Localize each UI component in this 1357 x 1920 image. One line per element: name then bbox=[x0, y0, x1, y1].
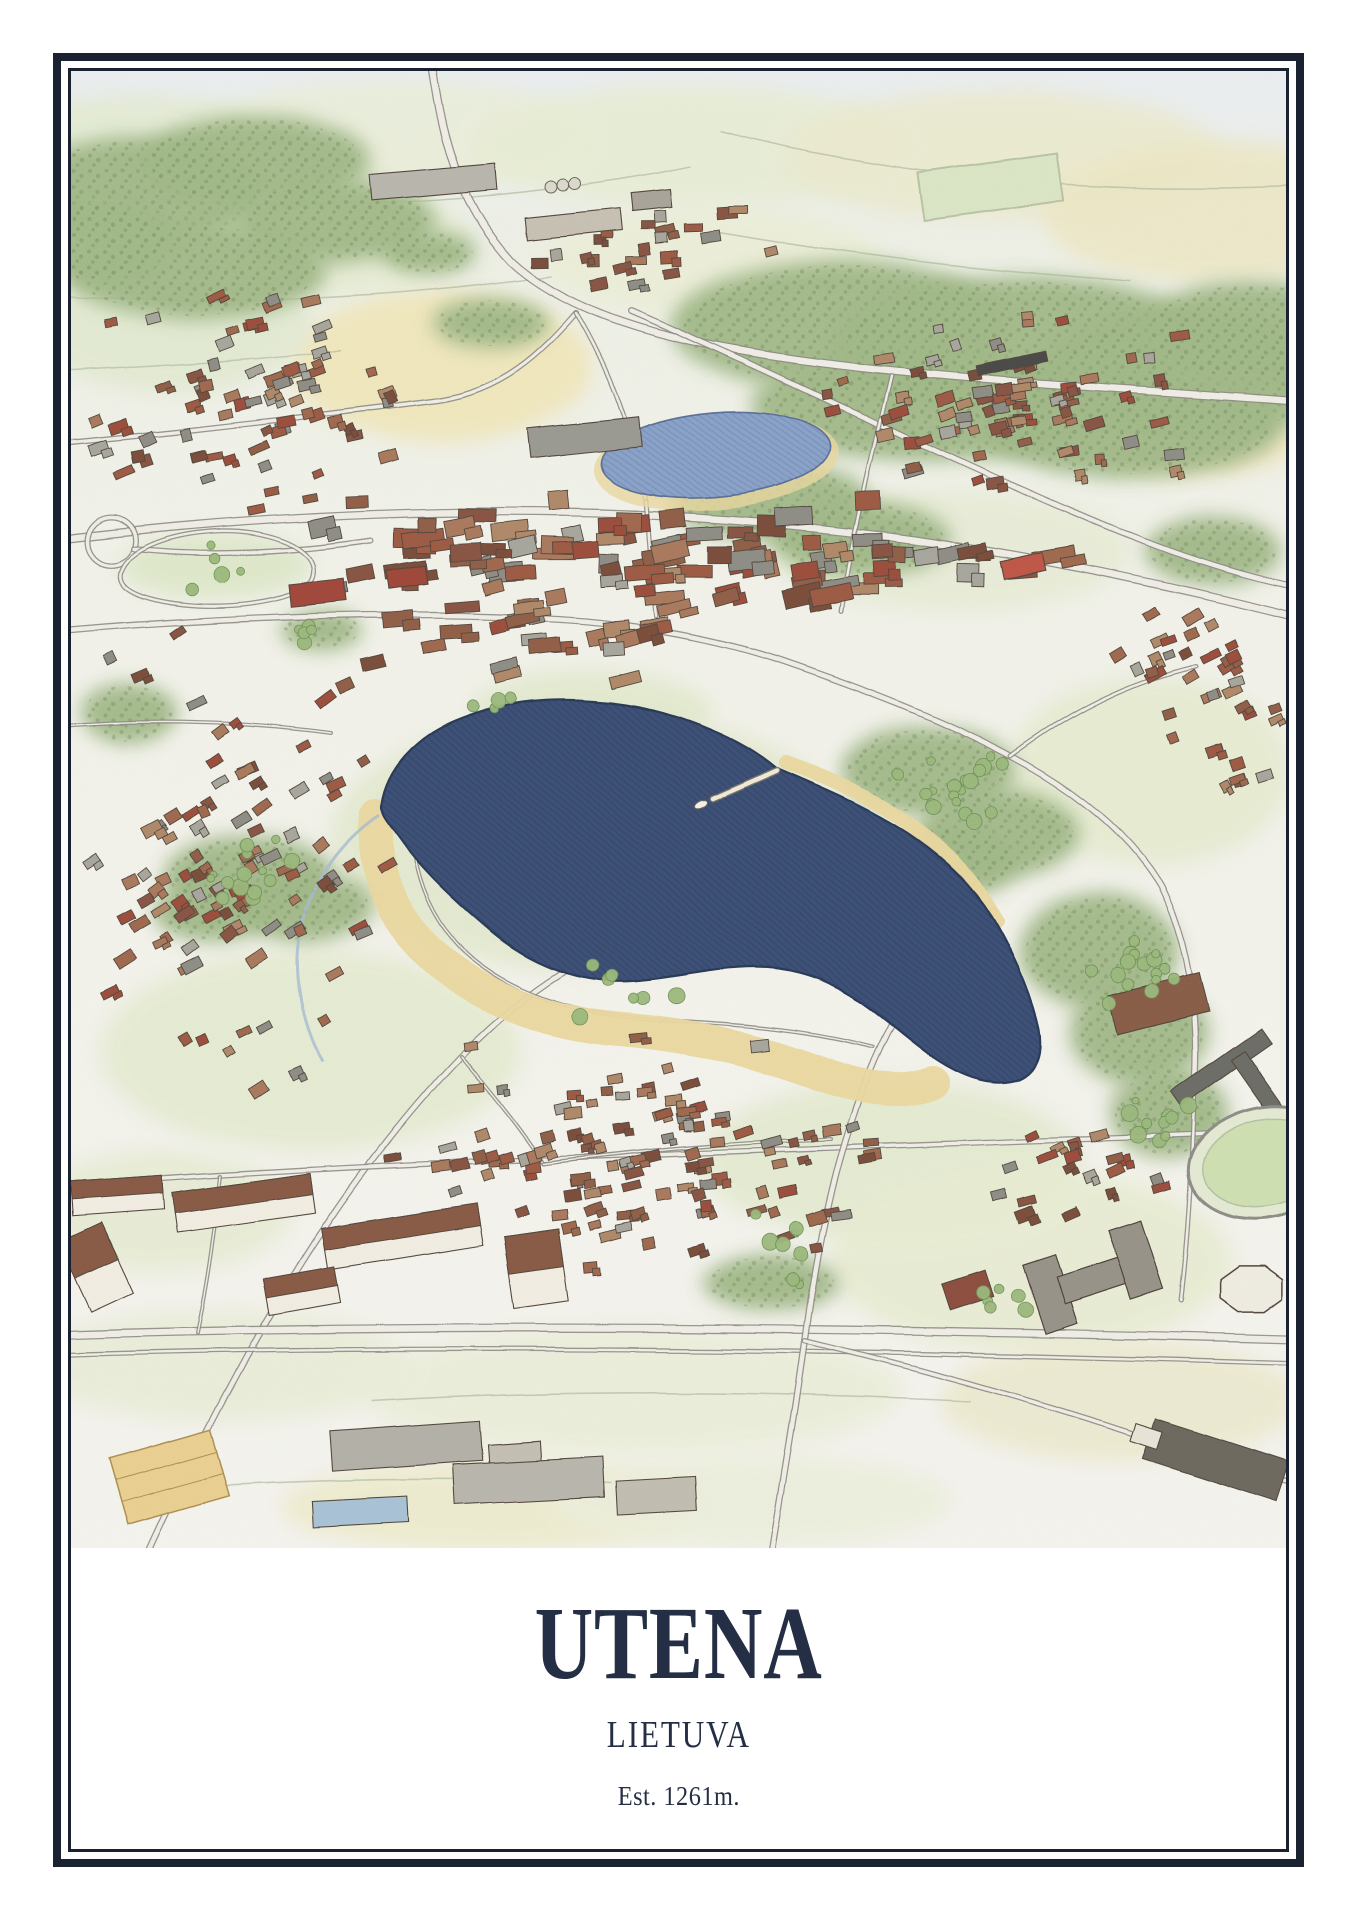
page-title: UTENA bbox=[0, 1592, 1357, 1696]
page-subtitle-text: LIETUVA bbox=[606, 1716, 750, 1754]
map-area bbox=[71, 71, 1286, 1548]
town-map-illustration bbox=[71, 71, 1286, 1548]
page-subtitle: LIETUVA bbox=[0, 1716, 1357, 1754]
pencil-grain-overlay bbox=[71, 71, 1286, 1548]
poster: UTENA LIETUVA Est. 1261m. bbox=[0, 0, 1357, 1920]
established-caption-text: Est. 1261m. bbox=[617, 1783, 739, 1810]
page-title-text: UTENA bbox=[534, 1592, 822, 1696]
established-caption: Est. 1261m. bbox=[0, 1783, 1357, 1810]
